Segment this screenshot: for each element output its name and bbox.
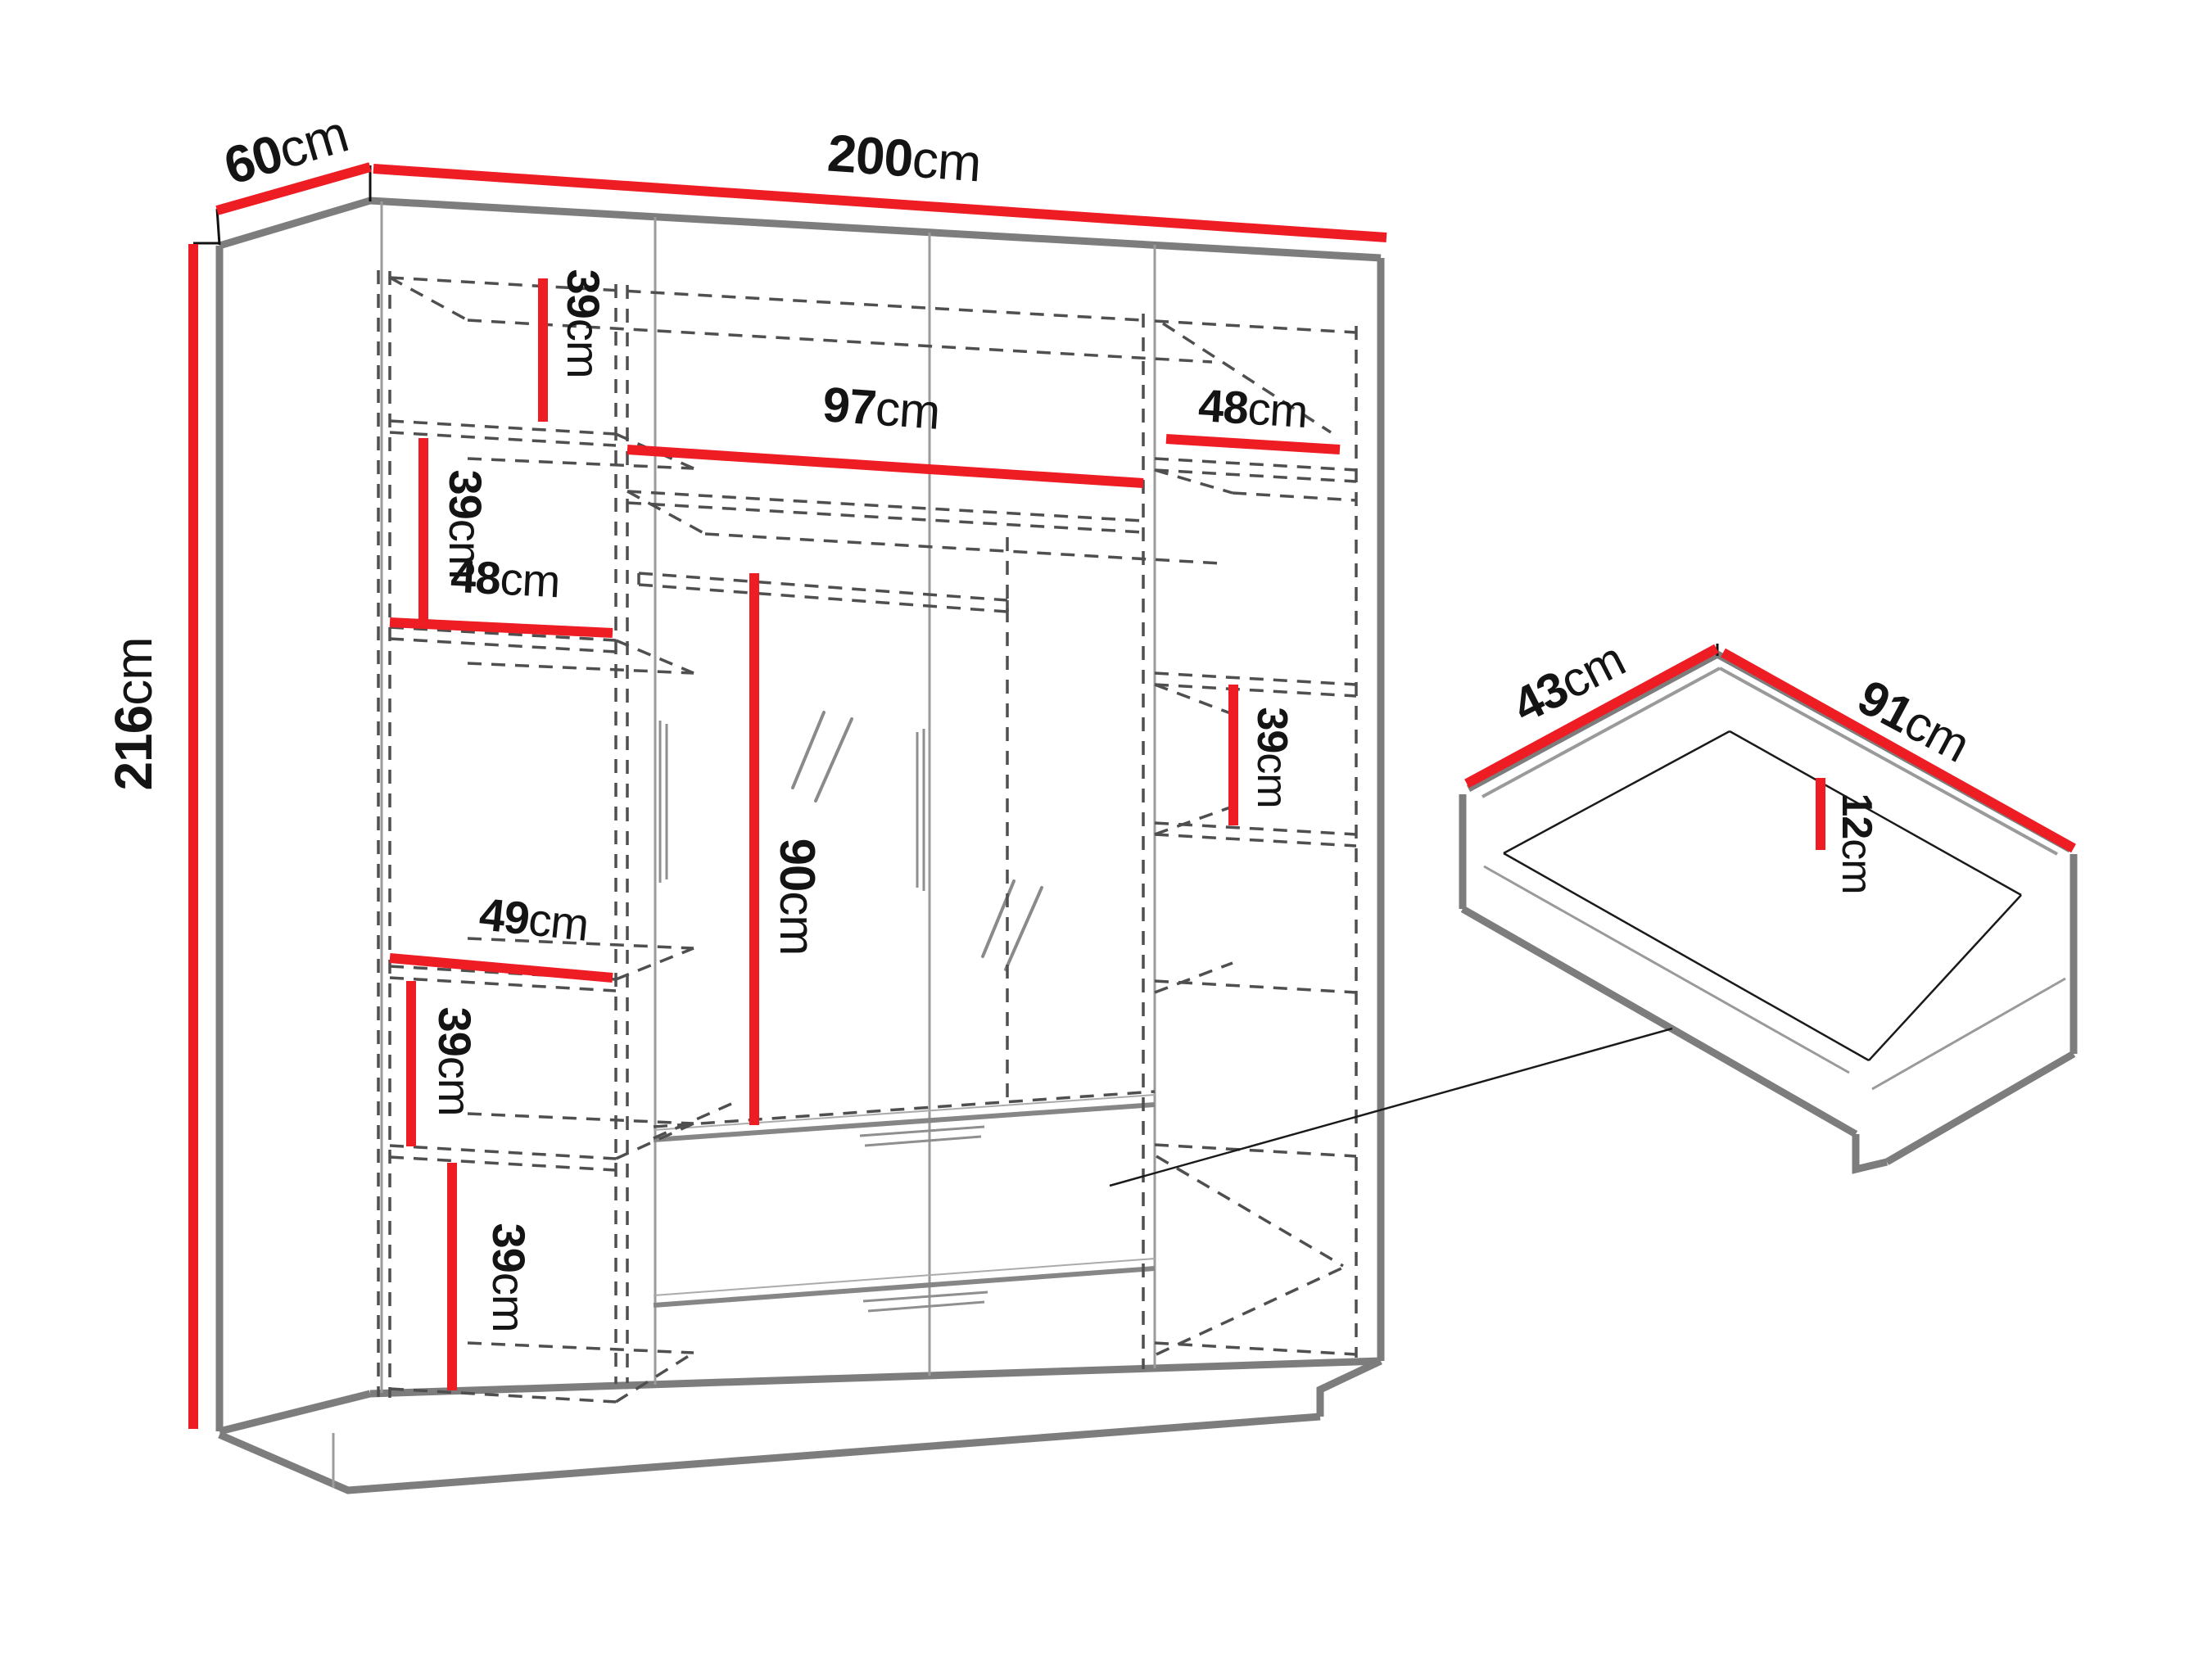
wardrobe-drawer-fronts <box>654 1095 1155 1311</box>
blk2-line <box>1869 895 2021 1060</box>
dimension-label: 39cm <box>484 1223 536 1332</box>
leader-line <box>1110 1028 1672 1186</box>
dimension-label: 43cm <box>1504 631 1633 733</box>
dash-line <box>1155 685 1356 696</box>
drawer-detail-dimensions: 43cm91cm12cm <box>1467 631 2074 894</box>
dimension-left-39-top: 39cm <box>543 269 610 422</box>
dimension-left-39-third: 39cm <box>411 981 482 1146</box>
s-thick-line <box>1887 1054 2074 1162</box>
dimension-right-39-shelf: 39cm <box>1233 685 1296 825</box>
dash-line <box>390 1157 616 1170</box>
dash-line <box>639 573 1007 600</box>
s-mir-line <box>816 719 852 801</box>
dimension-red-line <box>390 622 613 633</box>
s-hair-line <box>654 1095 1155 1130</box>
dimension-label: 39cm <box>1248 707 1296 807</box>
dash-line <box>468 663 694 673</box>
dimension-width-200: 200cm <box>373 124 1386 237</box>
dash-line <box>1156 1268 1343 1354</box>
dash-line <box>1155 321 1356 332</box>
dash-line <box>1155 470 1233 493</box>
dash-line <box>468 459 694 468</box>
dimension-height-216: 216cm <box>104 244 193 1429</box>
dash-line <box>1155 834 1356 846</box>
dimension-label: 48cm <box>450 549 561 607</box>
s-mir-line <box>1006 888 1042 970</box>
dash-line <box>1155 981 1356 992</box>
dimension-right-48-shelf: 48cm <box>1166 379 1340 450</box>
dash-line <box>1155 1343 1356 1354</box>
dimension-depth-60: 60cm <box>217 104 370 210</box>
s-mid-line <box>654 1268 1155 1305</box>
s-thick-line <box>219 1417 1320 1490</box>
dimension-left-39-bottom: 39cm <box>452 1163 536 1390</box>
dash-line <box>1155 963 1233 992</box>
blk2-line <box>1110 1028 1672 1186</box>
dimension-label: 90cm <box>771 839 826 956</box>
s-thick-line <box>1856 1134 1887 1169</box>
dimension-red-line <box>1166 439 1340 450</box>
dash-line <box>627 491 705 534</box>
dash-line <box>1155 1145 1356 1156</box>
wardrobe-dimension-diagram: 60cm200cm216cm39cm39cm48cm49cm39cm39cm97… <box>0 0 2212 1659</box>
dimension-label: 200cm <box>826 124 983 193</box>
s-mir-line <box>983 881 1014 956</box>
dimension-left-49-shelf: 49cm <box>390 888 613 978</box>
dimension-label: 12cm <box>1833 793 1880 893</box>
dimension-drawer-width-91: 91cm <box>1723 653 2074 848</box>
wardrobe-dimensions: 60cm200cm216cm39cm39cm48cm49cm39cm39cm97… <box>104 104 1386 1429</box>
dimension-label: 48cm <box>1197 379 1310 437</box>
s-hand-line <box>868 1302 984 1311</box>
wardrobe-doors <box>382 201 1155 1393</box>
dash-line <box>390 639 616 652</box>
dash-line <box>390 421 616 434</box>
s-hand-line <box>863 1292 988 1301</box>
dimension-label: 216cm <box>104 637 163 790</box>
s-hand-line <box>860 1127 984 1136</box>
dash-line <box>390 1146 616 1159</box>
dimension-middle-97-shelf: 97cm <box>627 377 1143 483</box>
s-thick-line <box>1320 1361 1381 1417</box>
s-mir-line <box>793 712 824 788</box>
dimension-label: 39cm <box>430 1007 482 1116</box>
dimension-red-line <box>627 450 1143 483</box>
dash-line <box>468 1114 694 1123</box>
blk2-line <box>1504 853 1869 1060</box>
dash-line <box>639 585 1007 612</box>
dash-line <box>1156 1156 1343 1266</box>
dash-line <box>1233 493 1356 500</box>
s-hand-line <box>865 1137 981 1146</box>
dimension-middle-90-hanging: 90cm <box>754 573 826 1125</box>
dimension-drawer-height-12: 12cm <box>1821 778 1880 894</box>
dash-line <box>1155 807 1233 834</box>
dash-line <box>390 278 468 320</box>
s-hair-line <box>654 1259 1155 1295</box>
dash-line <box>1155 459 1356 470</box>
dash-line <box>1155 685 1233 714</box>
s-thick-line <box>1463 909 1856 1134</box>
s-thick-line <box>370 1361 1381 1394</box>
s-thick-line <box>219 1394 370 1431</box>
dimension-drawer-depth-43: 43cm <box>1467 631 1717 784</box>
drawing-canvas: 60cm200cm216cm39cm39cm48cm49cm39cm39cm97… <box>0 0 2212 1659</box>
dimension-label: 39cm <box>559 269 610 378</box>
dimension-label: 97cm <box>821 377 941 440</box>
dash-line <box>468 1343 694 1353</box>
dash-line <box>1155 673 1356 685</box>
dgray3-line <box>1484 866 1849 1073</box>
dash-line <box>390 278 1143 320</box>
